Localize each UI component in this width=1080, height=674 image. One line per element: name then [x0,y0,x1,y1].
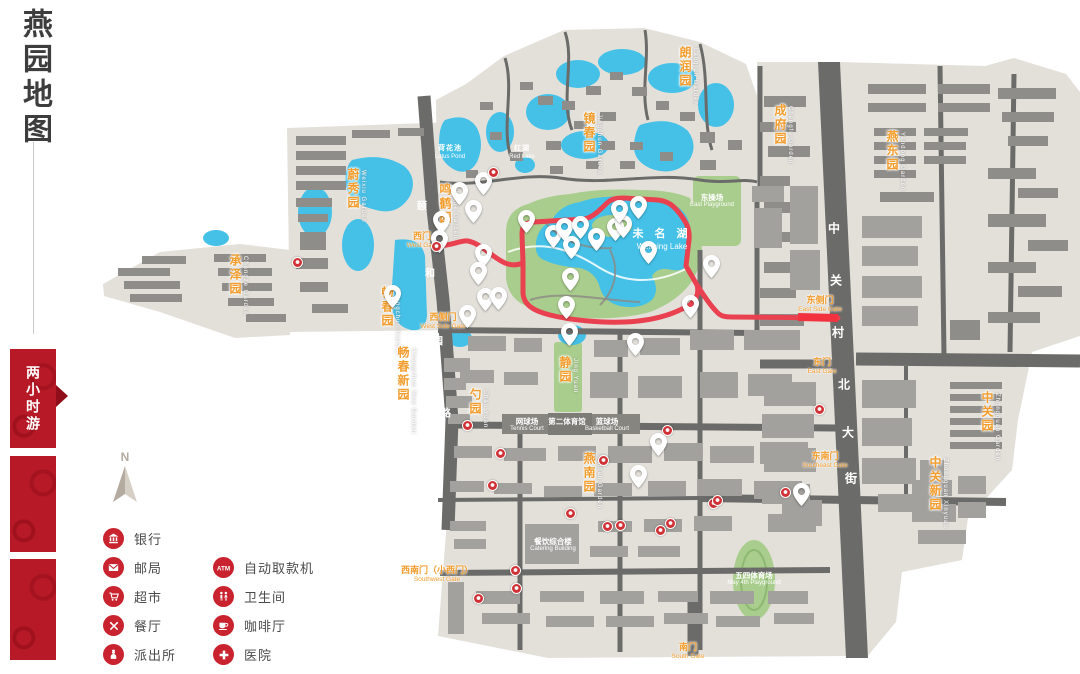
tour-tab-label: 两小时游 [23,365,43,433]
building [690,330,734,350]
building [752,186,784,202]
building [1002,112,1054,122]
legend-item: 医院 [213,640,314,669]
legend-label: 咖啡厅 [244,616,286,635]
building [610,72,623,80]
garden-name: 承泽园 [229,254,241,316]
building [698,479,742,496]
building [620,161,635,169]
street-name-char: 村 [832,324,844,341]
building [774,613,814,624]
building [590,546,628,557]
building [700,160,716,170]
street-name-char: 北 [838,376,850,393]
building [352,130,390,138]
poi-pin[interactable] [627,333,644,356]
building [300,282,328,292]
facility-name: 五四体育场 [735,571,773,580]
facility-name-en: Catering Building [530,546,576,553]
building [950,320,980,340]
facility-name-en: Tennis Court [510,426,544,433]
garden-label: 蔚秀园Weixiu Garden [347,168,366,223]
building [600,591,644,604]
facility-name-en: East Playground [690,202,734,209]
building [546,616,594,627]
east-playground [693,176,741,246]
garden-name-en: Weixiu Garden [360,170,366,223]
garden-name-en: Jingchun Garden [596,114,602,175]
poi-pin[interactable] [490,287,507,310]
post-office-icon [103,557,124,578]
restaurant-icon [103,615,124,636]
page-title: 燕园地图 [12,8,56,148]
building [918,530,966,544]
water-name-en: Red Lake [509,154,535,162]
gate-name-en: East Gate [808,368,837,375]
gate-name: 西南门（小西门） [401,565,473,575]
street-name-char: 园 [433,333,443,348]
facility-label: 餐饮综合楼Catering Building [530,537,576,553]
supermarket-icon [103,586,124,607]
bank-icon [103,528,124,549]
building [630,142,643,150]
poi-pin[interactable] [470,262,487,285]
building [454,539,486,549]
building [638,376,682,398]
building [450,521,486,531]
water-name: 荷花池 [438,145,462,152]
legend-item: 咖啡厅 [213,611,314,640]
garden-label: 中关园Zhongguan Garden [981,391,1000,461]
building [296,136,346,145]
building [520,82,533,90]
facility-label: 第二体育馆 [548,417,586,426]
building [762,414,814,438]
garden-name: 镜春园 [583,112,595,175]
building [790,186,818,244]
legend-item: 邮局 [103,553,176,582]
amenity-marker[interactable] [510,565,521,576]
gate-name-en: Southwest Gate [401,576,473,583]
amenity-marker[interactable] [495,448,506,459]
building [586,86,601,95]
facility-name-en: May 4th Playground [727,580,780,587]
poi-pin[interactable] [384,285,401,308]
building [298,214,328,222]
building [490,132,502,140]
amenity-marker[interactable] [473,593,484,604]
amenity-marker[interactable] [431,241,442,252]
building [640,338,680,355]
legend-label: 超市 [134,587,162,606]
legend-label: 银行 [134,529,162,548]
building [504,448,546,461]
legend-label: 医院 [244,645,272,664]
building [468,336,506,351]
building [444,358,470,372]
atm-icon: ATM [213,557,234,578]
poi-pin[interactable] [558,296,575,319]
building [454,446,492,458]
water-name-label: 红湖Red Lake [509,145,535,161]
legend-label: 卫生间 [244,587,286,606]
amenity-marker[interactable] [814,404,825,415]
building [1018,188,1058,198]
garden-name: 朗润园 [679,46,691,106]
toilet-icon [213,586,234,607]
building [938,84,990,94]
cafe-icon [213,615,234,636]
building [540,591,584,602]
gate-name-en: Southeast Gate [802,462,847,469]
street-name-char: 颐 [417,198,427,213]
facility-name: 餐饮综合楼 [534,537,572,546]
street-name-char: 关 [830,272,842,289]
building [450,481,484,492]
facility-name: 东操场 [701,193,724,202]
building [562,101,575,110]
building [938,103,990,112]
building [700,132,715,143]
building [728,140,742,150]
building [638,546,680,557]
building [124,281,180,289]
building [958,502,986,518]
amenity-marker[interactable] [712,495,723,506]
amenity-marker[interactable] [655,525,666,536]
building [710,446,754,463]
garden-label: 成府园Chengfu Garden [774,104,793,164]
poi-pin[interactable] [562,268,579,291]
legend-column-1: 银行邮局超市餐厅派出所 [103,524,176,669]
poi-pin[interactable] [572,216,589,239]
building [868,84,926,94]
facility-name: 篮球场 [596,417,619,426]
sidebar-block-3[interactable] [10,559,56,660]
building [754,208,782,248]
poi-pin[interactable] [611,200,628,223]
building [950,382,1002,389]
building [988,262,1036,273]
poi-pin[interactable] [630,465,647,488]
building [988,168,1036,179]
building [538,96,553,105]
garden-name-en: Shao Yuan [482,390,488,428]
legend-column-2: ATM自动取款机卫生间咖啡厅医院 [213,553,314,669]
amenity-marker[interactable] [487,480,498,491]
compass-north-label: N [110,450,140,464]
building [444,378,466,390]
building [246,314,286,322]
building [296,151,346,160]
building [680,112,695,121]
poi-pin[interactable] [682,295,699,318]
amenity-marker[interactable] [602,521,613,532]
sidebar-block-2[interactable] [10,456,56,552]
amenity-marker[interactable] [488,167,499,178]
building [764,382,816,406]
garden-label: 镜春园Jingchun Garden [583,112,602,175]
garden-name-en: Jing Yuan [572,358,578,393]
building [546,141,561,150]
title-divider-line [33,142,34,334]
building [648,481,686,496]
gate-name: 东侧门 [806,295,833,305]
garden-name-en: Changchun New Garden [410,348,416,434]
garden-name-en: Chengfu Garden [787,106,793,164]
garden-name-en: Yandong Garden [899,132,905,191]
amenity-marker[interactable] [565,508,576,519]
legend-label: 派出所 [134,645,176,664]
building [868,103,926,112]
legend-item: ATM自动取款机 [213,553,314,582]
legend-item: 超市 [103,582,176,611]
compass: N [110,450,140,509]
legend-label: 餐厅 [134,616,162,635]
facility-label: 五四体育场May 4th Playground [727,571,780,587]
amenity-marker[interactable] [511,583,522,594]
building [600,112,616,121]
facility-name-en: Basketball Court [585,426,629,433]
compass-arrow-icon [112,464,138,504]
building [312,304,348,313]
building [1028,240,1068,251]
building [710,591,754,604]
garden-name-en: Zhongguan Xinyuan [942,458,948,529]
street-name-char: 大 [842,424,854,441]
building [514,338,542,352]
garden-label: 中关新园Zhongguan Xinyuan [929,456,948,529]
gate-label: 东南门Southeast Gate [802,452,847,469]
poi-pin[interactable] [630,196,647,219]
water-name-en: Lotus Pond [435,154,465,162]
building [862,458,916,484]
building [924,128,968,136]
tour-tab-arrow [56,385,68,407]
garden-label: 畅春新园Changchun New Garden [397,346,416,434]
yanyuan-map-page: { "page": { "title": "燕园地图" }, "sidebar"… [0,0,1080,674]
garden-label: 朗润园Langrun Garden [679,46,698,106]
water-name-label: 荷花池Lotus Pond [435,145,465,161]
building [296,198,332,207]
building [606,616,654,627]
building [862,246,918,266]
east-gate-route-bar [798,317,838,318]
building [632,87,647,96]
poi-pin[interactable] [518,210,535,233]
gate-name: 西侧门 [429,312,456,322]
building [700,372,738,398]
road [856,359,1080,361]
garden-name: 成府园 [774,104,786,164]
gate-name: 南门 [679,642,697,652]
garden-name: 燕东园 [886,130,898,191]
building [594,340,628,357]
building [118,268,170,276]
street-name-char: 中 [828,220,840,237]
road [700,498,1006,502]
building [608,446,652,463]
building [590,372,628,398]
building [998,88,1056,99]
poi-pin[interactable] [793,483,810,506]
building [296,181,346,190]
building [862,216,922,238]
facility-label: 篮球场Basketball Court [585,417,629,433]
building [862,306,918,326]
water-name: 未 名 湖 [632,228,691,240]
garden-name: 蔚秀园 [347,168,359,223]
legend-label: 自动取款机 [244,558,314,577]
garden-name: 中关新园 [929,456,941,529]
building [744,330,800,350]
gate-label: 东门East Gate [808,358,837,375]
gate-label: 南门South Gate [672,643,705,660]
building [988,312,1040,323]
amenity-marker[interactable] [615,520,626,531]
legend-item: 银行 [103,524,176,553]
poi-pin[interactable] [561,323,578,346]
building [660,152,673,161]
legend-label: 邮局 [134,558,162,577]
building [664,613,708,624]
building [664,443,702,461]
street-name-char: 路 [441,405,451,420]
gate-name: 东南门 [811,451,838,461]
building [550,166,563,174]
amenity-marker[interactable] [462,420,473,431]
hospital-icon [213,644,234,665]
building [790,250,820,290]
poi-pin[interactable] [703,255,720,278]
legend-item: 派出所 [103,640,176,669]
garden-label: 承泽园Chengze Garden [229,254,248,316]
poi-pin[interactable] [563,236,580,259]
building [760,176,790,186]
building [924,142,966,150]
building [504,372,538,385]
garden-name: 畅春新园 [397,346,409,434]
gate-name-en: South Gate [672,653,705,660]
building [480,102,493,110]
building [862,418,912,446]
water-name: 红湖 [514,145,530,152]
building [716,616,760,627]
garden-label: 静园Jing Yuan [559,356,578,393]
amenity-marker[interactable] [665,518,676,529]
amenity-marker[interactable] [780,487,791,498]
garden-name: 中关园 [981,391,993,461]
building [142,256,186,264]
facility-label: 网球场Tennis Court [510,417,544,433]
amenity-marker[interactable] [292,257,303,268]
facility-name: 第二体育馆 [548,417,586,426]
gate-name-en: East Side Gate [798,306,842,313]
building [296,166,346,175]
legend-item: 卫生间 [213,582,314,611]
building [448,582,464,634]
building [988,214,1046,227]
garden-name-en: Langrun Garden [692,48,698,106]
street-name-char: 和 [425,265,435,280]
building [1008,136,1048,146]
building [544,486,582,497]
garden-name: 静园 [559,356,571,393]
amenity-marker[interactable] [662,425,673,436]
building [494,483,532,494]
garden-name-en: Chengze Garden [242,256,248,316]
poi-pin[interactable] [640,241,657,264]
building [656,101,669,110]
facility-label: 东操场East Playground [690,193,734,209]
garden-name: 燕南园 [583,452,595,509]
poi-pin[interactable] [459,305,476,328]
gate-name: 东门 [813,357,831,367]
tour-tab-two-hour[interactable]: 两小时游 [10,349,56,448]
garden-name-en: Zhongguan Garden [994,393,1000,461]
building [862,380,916,408]
svg-text:ATM: ATM [217,565,230,572]
building [958,476,986,494]
building [1018,286,1062,297]
gate-label: 东侧门East Side Gate [798,296,842,313]
facility-name: 网球场 [516,417,539,426]
building [924,156,966,164]
building [880,192,934,202]
street-name-char: 街 [845,470,857,487]
building [300,232,326,250]
police-station-icon [103,644,124,665]
poi-pin[interactable] [588,228,605,251]
legend-item: 餐厅 [103,611,176,640]
amenity-marker[interactable] [598,455,609,466]
building [862,276,922,298]
road [438,498,700,500]
building [658,591,698,602]
building [600,141,615,150]
building [694,516,732,531]
building [768,591,808,604]
poi-pin[interactable] [650,433,667,456]
poi-pin[interactable] [465,200,482,223]
building [482,613,530,624]
building [130,294,182,302]
gate-name: 西门 [413,231,431,241]
garden-label: 燕东园Yandong Garden [886,130,905,191]
building [398,128,424,136]
gate-label: 西南门（小西门）Southwest Gate [401,566,473,583]
